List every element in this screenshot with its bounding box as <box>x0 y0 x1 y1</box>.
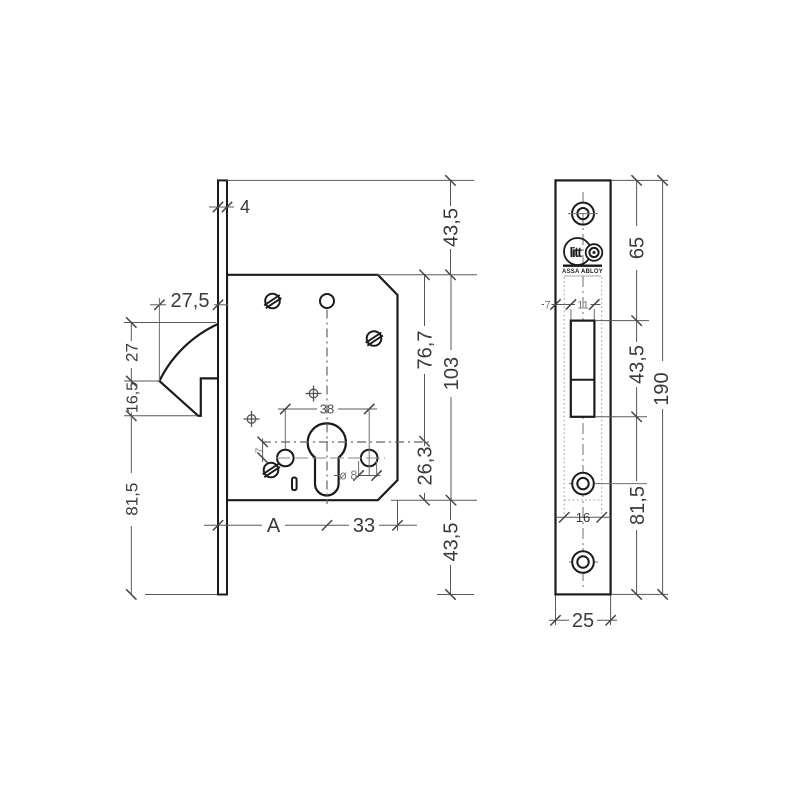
svg-text:65: 65 <box>627 237 649 259</box>
svg-text:7: 7 <box>544 300 550 312</box>
svg-text:11: 11 <box>577 300 588 312</box>
svg-text:A: A <box>267 515 281 537</box>
svg-text:4: 4 <box>240 197 250 217</box>
svg-text:16,5: 16,5 <box>124 382 141 413</box>
svg-text:43,5: 43,5 <box>441 208 463 247</box>
svg-text:27,5: 27,5 <box>171 290 210 312</box>
svg-text:81,5: 81,5 <box>123 483 142 516</box>
svg-text:43,5: 43,5 <box>441 523 463 562</box>
svg-text:26,3: 26,3 <box>415 447 437 486</box>
svg-text:43,5: 43,5 <box>627 345 649 384</box>
svg-text:16: 16 <box>576 510 590 525</box>
svg-text:7: 7 <box>254 447 266 453</box>
svg-text:76,7: 76,7 <box>415 331 437 370</box>
svg-text:190: 190 <box>651 372 673 405</box>
svg-text:ø 8: ø 8 <box>339 468 357 482</box>
svg-text:25: 25 <box>572 610 594 632</box>
svg-text:litt: litt <box>569 244 582 260</box>
svg-text:103: 103 <box>441 357 463 390</box>
svg-text:81,5: 81,5 <box>627 486 649 525</box>
svg-text:33: 33 <box>353 515 375 537</box>
svg-text:27: 27 <box>122 343 141 362</box>
svg-text:ASSA ABLOY: ASSA ABLOY <box>562 269 603 275</box>
